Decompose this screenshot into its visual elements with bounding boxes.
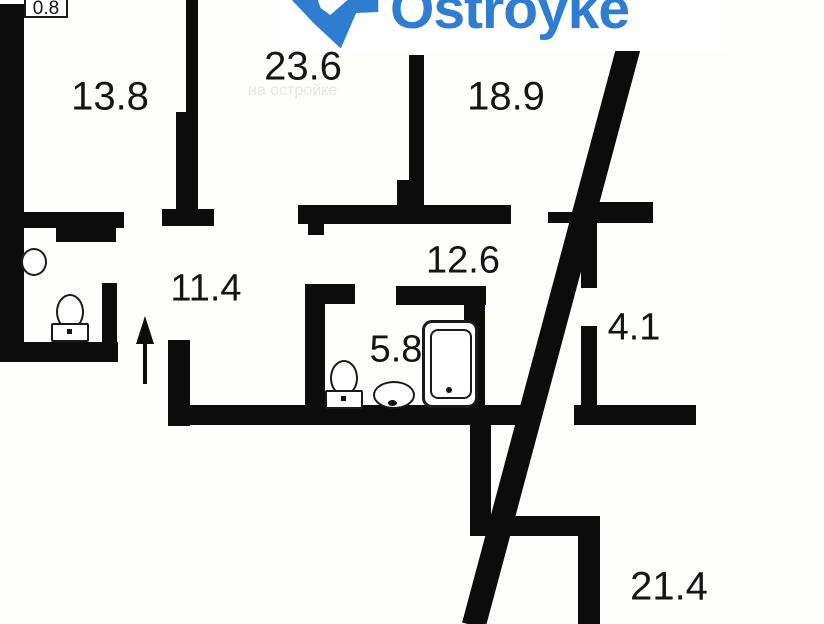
wall-mid-horizontal — [298, 205, 511, 224]
floor-plan: на остройке 0.8 13.8 23.6 18.9 12.6 11.4… — [0, 0, 824, 624]
wall-mid-horizontal-stub — [308, 223, 324, 235]
toilet-tank-dot — [67, 329, 72, 334]
sink-drain-dot — [388, 400, 397, 406]
arrow-up-icon — [136, 316, 154, 344]
wall-divider-left-foot — [162, 209, 214, 226]
wall-wc-bottom — [0, 342, 118, 362]
wall-divider-left-wide — [176, 112, 198, 213]
balcony-area: 0.8 — [33, 0, 59, 20]
wall-divider-right-knob — [397, 180, 424, 206]
wall-wc-right — [102, 283, 117, 345]
wall-divider-left-thin — [186, 0, 198, 116]
room-label-top-right: 18.9 — [467, 75, 545, 120]
arrow-up-shaft — [143, 342, 147, 384]
logo-text: Ostroyke — [390, 0, 629, 42]
wall-bath-top-left — [305, 284, 355, 304]
room-label-top-left: 13.8 — [71, 75, 149, 120]
watermark-logo: Ostroyke — [280, 0, 726, 51]
room-label-bathroom: 5.8 — [370, 329, 423, 372]
wall-room1-bottom-stub — [56, 226, 116, 242]
round-sink-icon — [21, 248, 47, 276]
room-label-bottom-right: 21.4 — [630, 565, 708, 610]
toilet-tank-dot — [341, 396, 346, 401]
room-label-balcony: 0.8 — [24, 0, 68, 18]
room-label-top-center: 23.6 — [264, 45, 342, 90]
room-label-storage: 4.1 — [608, 307, 661, 350]
wall-storage-left-bottom — [581, 326, 597, 410]
bathtub-icon — [422, 320, 478, 408]
room-label-hallway: 11.4 — [170, 268, 241, 311]
bathtub-drain — [446, 387, 452, 393]
room-label-corridor: 12.6 — [426, 240, 500, 283]
wall-step-vertical-2 — [578, 516, 600, 624]
map-pin-icon — [288, 0, 384, 50]
wall-bath-left — [305, 284, 325, 425]
wall-left-outer — [0, 4, 24, 362]
